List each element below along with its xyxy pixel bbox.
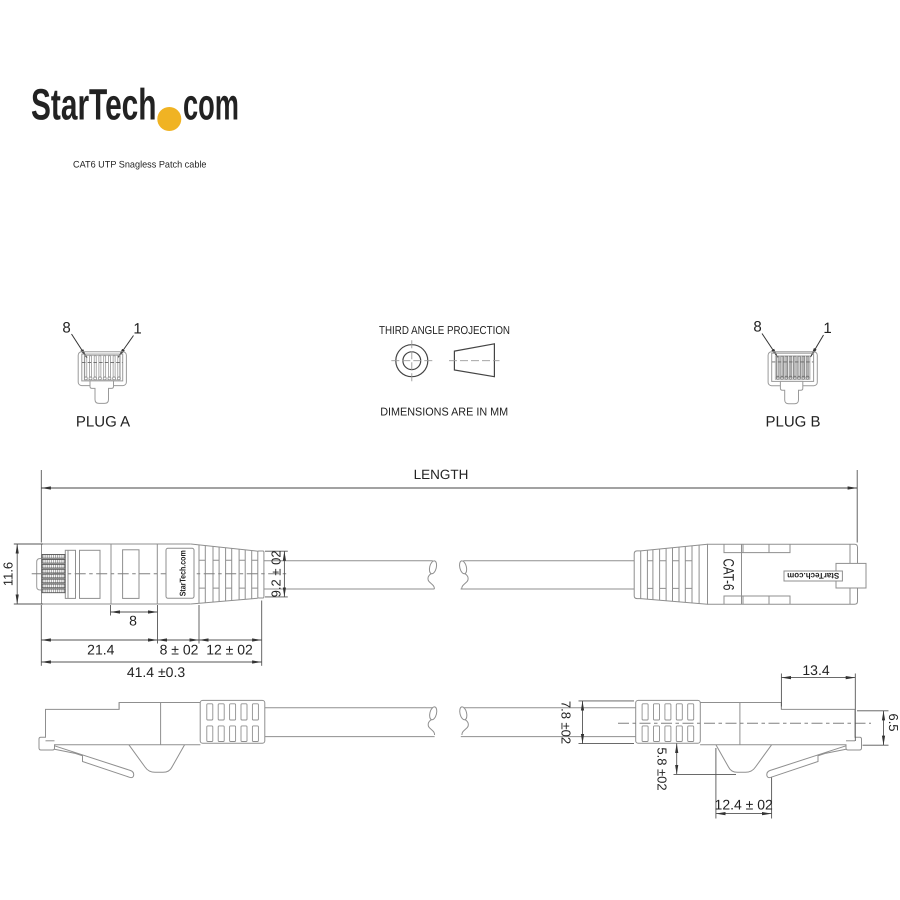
svg-text:1: 1 <box>823 320 831 337</box>
svg-text:1: 1 <box>133 321 141 338</box>
svg-text:PLUG B: PLUG B <box>765 414 820 431</box>
svg-text:StarTech: StarTech <box>31 81 157 130</box>
svg-text:PLUG A: PLUG A <box>76 414 130 431</box>
svg-text:THIRD ANGLE PROJECTION: THIRD ANGLE PROJECTION <box>379 325 510 337</box>
svg-text:8: 8 <box>753 319 761 336</box>
svg-text:7.8 ±02: 7.8 ±02 <box>559 701 574 744</box>
svg-text:13.4: 13.4 <box>802 662 829 678</box>
svg-text:CAT-6: CAT-6 <box>720 559 737 591</box>
svg-text:com: com <box>183 81 239 130</box>
svg-text:8 ± 02: 8 ± 02 <box>160 641 199 657</box>
svg-text:12.4 ± 02: 12.4 ± 02 <box>715 796 773 812</box>
svg-text:41.4 ±0.3: 41.4 ±0.3 <box>127 664 185 680</box>
svg-text:StarTech.com: StarTech.com <box>787 571 839 580</box>
svg-text:DIMENSIONS ARE IN MM: DIMENSIONS ARE IN MM <box>380 406 508 418</box>
svg-text:21.4: 21.4 <box>87 641 114 657</box>
svg-text:StarTech.com: StarTech.com <box>178 550 188 596</box>
svg-text:12 ± 02: 12 ± 02 <box>206 641 253 657</box>
svg-text:8: 8 <box>129 613 137 629</box>
svg-text:11.6: 11.6 <box>1 562 16 586</box>
svg-text:6.5: 6.5 <box>886 713 900 731</box>
svg-text:LENGTH: LENGTH <box>414 467 469 482</box>
svg-text:CAT6 UTP Snagless Patch cable: CAT6 UTP Snagless Patch cable <box>73 160 207 171</box>
svg-text:9.2 ± 02: 9.2 ± 02 <box>269 550 284 597</box>
svg-text:8: 8 <box>62 320 70 337</box>
svg-text:5.8 ±02: 5.8 ±02 <box>655 747 670 790</box>
